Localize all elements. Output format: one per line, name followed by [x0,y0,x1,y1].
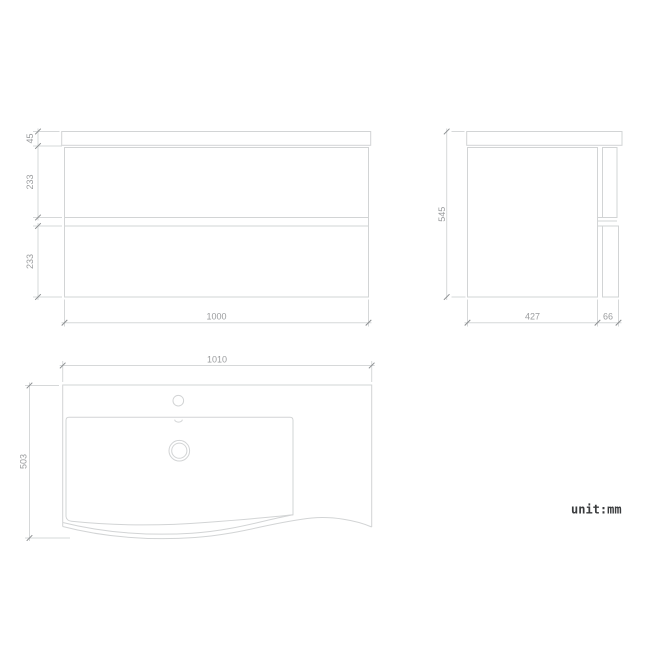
countertop-side [467,132,622,146]
top-view [63,385,372,539]
cabinet-front [65,148,369,298]
dimension-lines [25,129,622,542]
front-view [62,132,371,298]
countertop-top-outline [63,385,372,527]
front-edge-outer-curve [63,518,372,539]
cabinet-side [468,148,598,298]
vanity-technical-drawing: 45 233 233 1000 545 427 66 1010 503 unit… [0,0,650,650]
dimension-labels: 45 233 233 1000 545 427 66 1010 503 [19,133,614,469]
dim-label-front-top-height: 45 [25,133,35,143]
unit-note-group: unit:mm [571,503,622,517]
basin-outline [66,417,293,516]
side-view [467,132,622,298]
dim-label-top-width: 1010 [207,354,227,364]
dimension-ticks [27,129,622,541]
countertop-front [62,132,371,146]
dim-label-side-depth: 427 [525,312,540,322]
dim-label-front-lower-drawer: 233 [25,254,35,269]
dim-label-front-width: 1000 [206,312,226,322]
upper-drawer-front-side [603,148,618,218]
object-geometry [62,132,622,539]
lower-drawer-front-side [603,226,619,297]
dim-label-front-upper-drawer: 233 [25,174,35,189]
basin-bottom-curve [66,515,293,525]
drain-inner-circle-icon [172,443,187,458]
unit-note-label: unit:mm [571,503,622,517]
technical-drawing-page: 45 233 233 1000 545 427 66 1010 503 unit… [0,0,650,650]
dim-label-top-depth: 503 [19,454,29,469]
faucet-hole-icon [173,395,184,406]
overflow-slot-icon [175,420,183,423]
dim-label-side-height: 545 [437,207,447,222]
dim-label-side-drawer-front: 66 [603,312,613,322]
